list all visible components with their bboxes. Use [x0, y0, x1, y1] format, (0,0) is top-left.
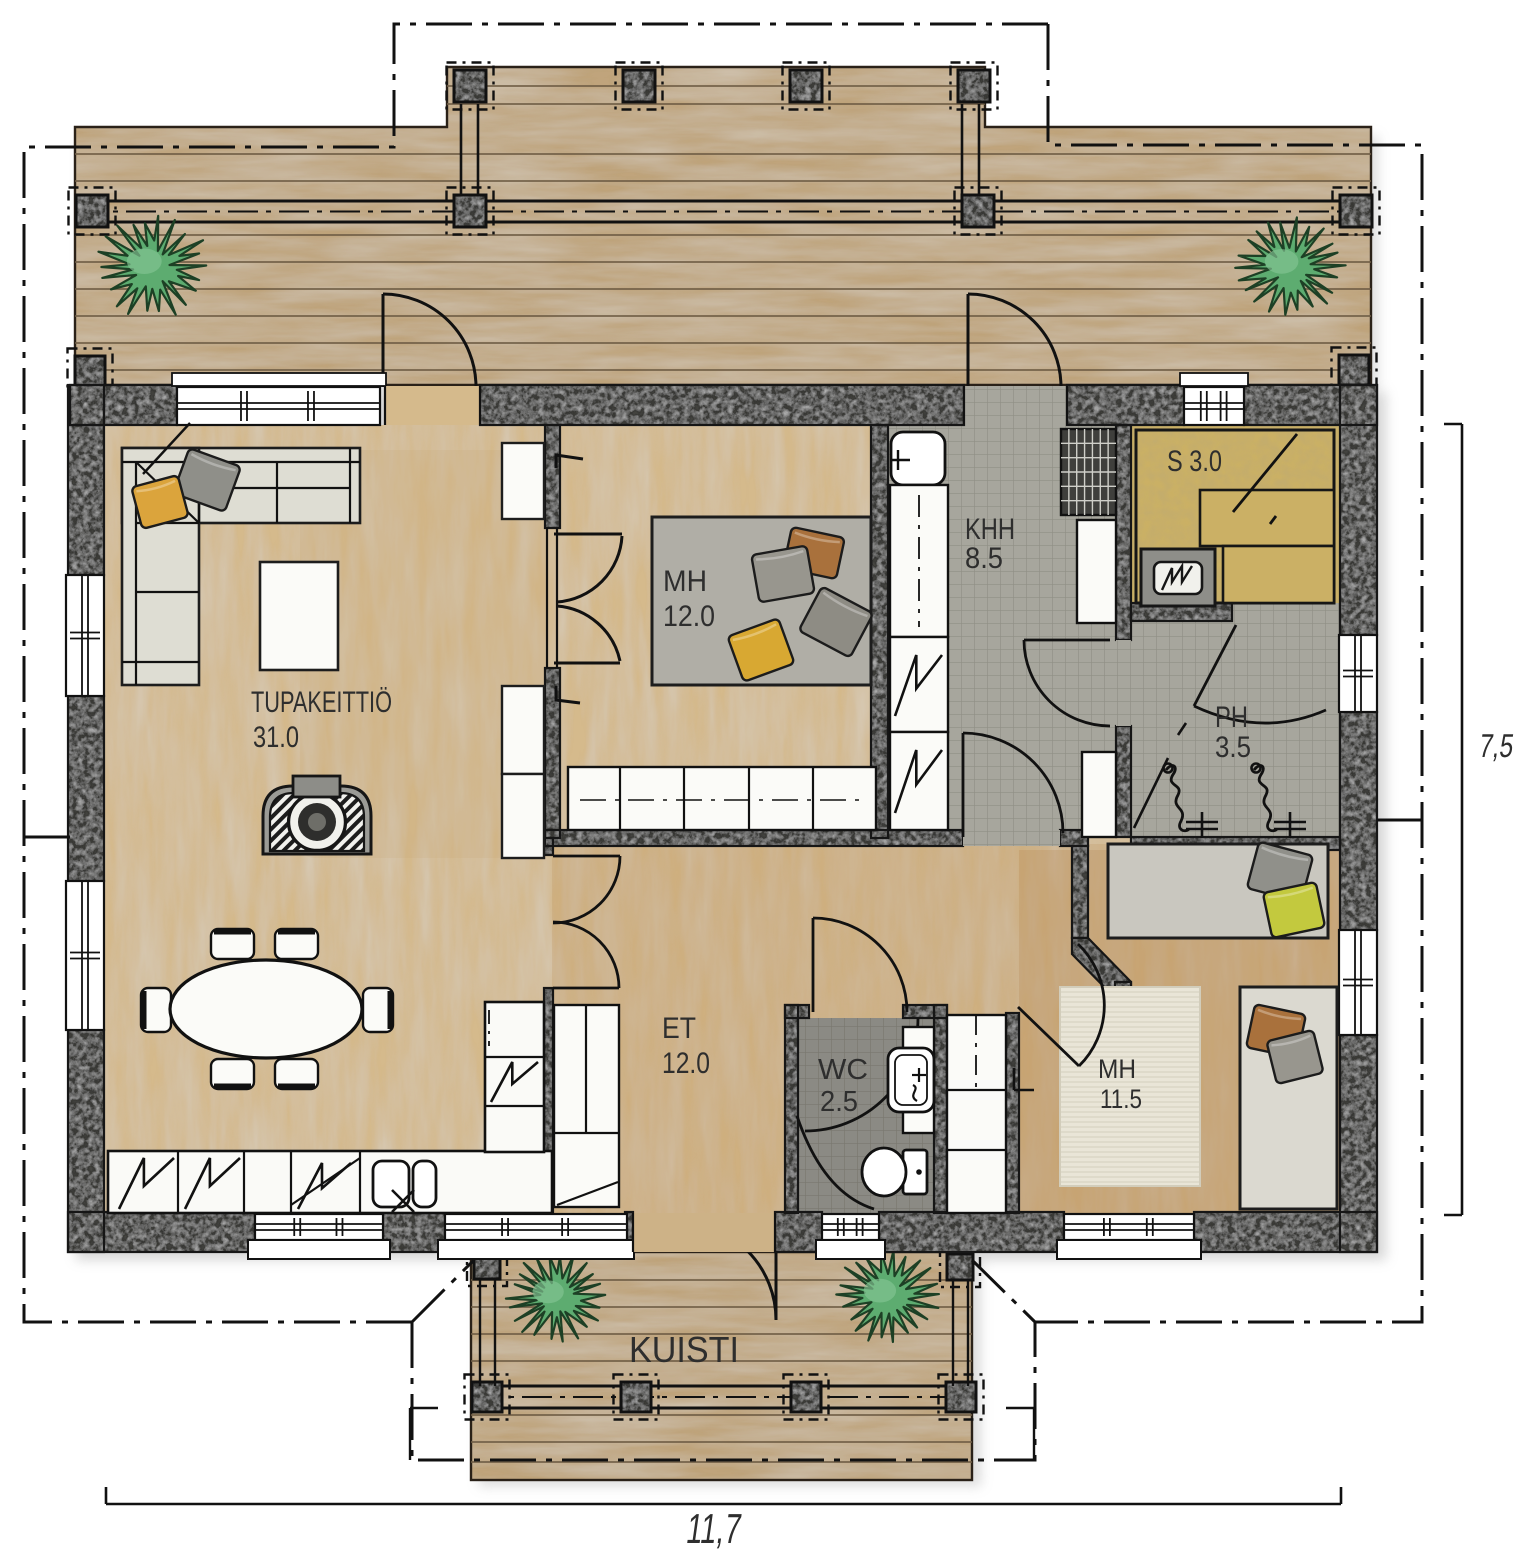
- svg-text:MH: MH: [663, 565, 707, 598]
- svg-text:31.0: 31.0: [253, 721, 299, 754]
- svg-text:PH: PH: [1215, 701, 1248, 734]
- svg-text:WC: WC: [818, 1054, 868, 1086]
- svg-text:3.5: 3.5: [1215, 731, 1251, 764]
- svg-text:8.5: 8.5: [965, 542, 1003, 575]
- svg-text:11,7: 11,7: [684, 1505, 745, 1552]
- svg-text:TUPAKEITTIÖ: TUPAKEITTIÖ: [251, 686, 392, 719]
- svg-text:7,5: 7,5: [1477, 728, 1516, 765]
- svg-text:KUISTI: KUISTI: [629, 1329, 739, 1370]
- svg-text:S 3.0: S 3.0: [1167, 445, 1222, 478]
- svg-text:11.5: 11.5: [1100, 1084, 1142, 1114]
- svg-text:MH: MH: [1098, 1054, 1136, 1084]
- svg-text:12.0: 12.0: [662, 1047, 710, 1080]
- svg-text:12.0: 12.0: [663, 600, 715, 633]
- svg-text:ET: ET: [662, 1012, 696, 1045]
- svg-text:2.5: 2.5: [820, 1086, 858, 1118]
